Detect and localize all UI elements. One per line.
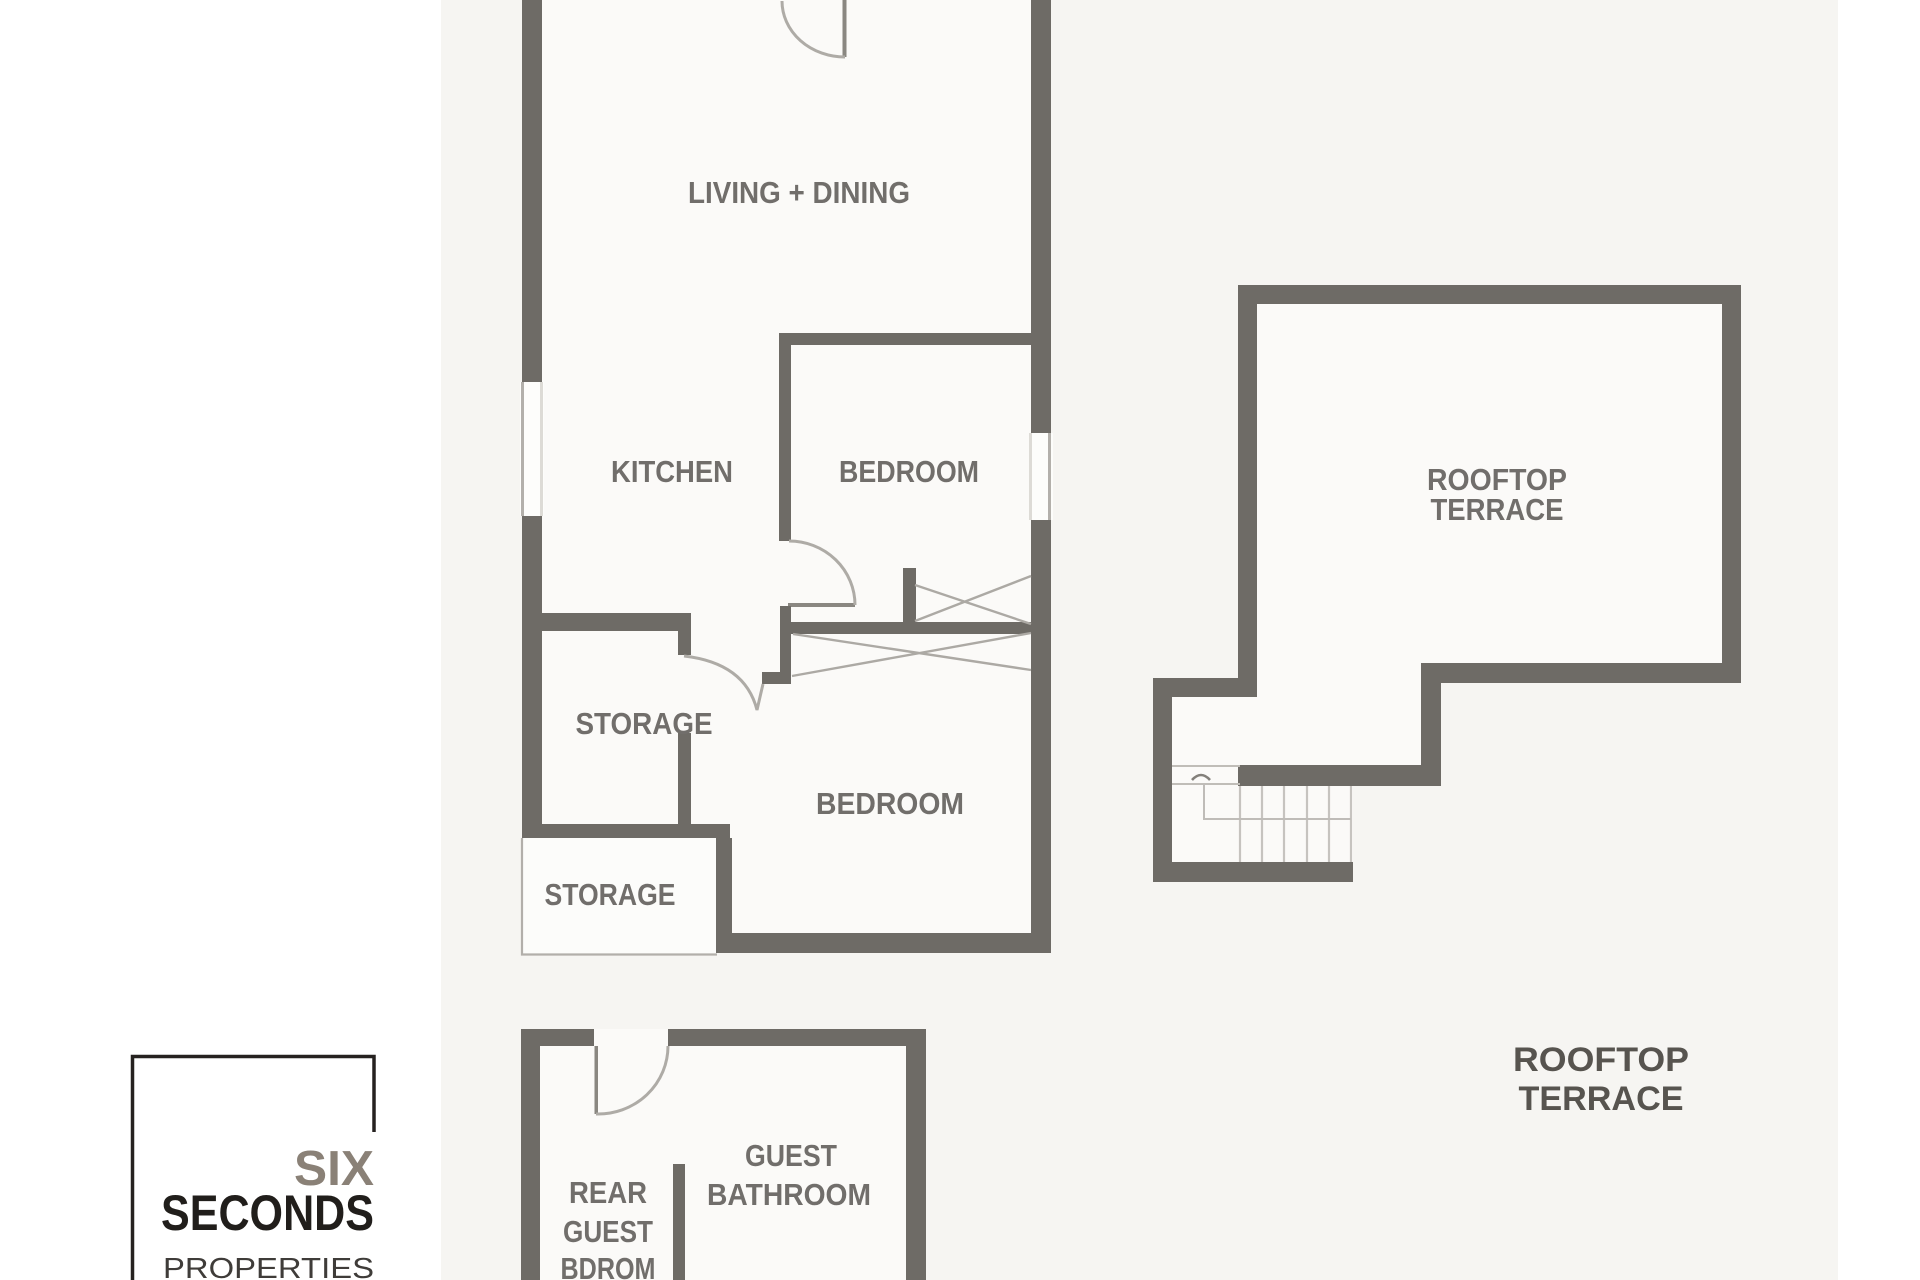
svg-text:BDROM: BDROM (561, 1251, 656, 1280)
svg-text:BATHROOM: BATHROOM (707, 1177, 871, 1212)
svg-text:STORAGE: STORAGE (545, 877, 676, 912)
svg-text:STORAGE: STORAGE (576, 706, 713, 741)
svg-text:TERRACE: TERRACE (1431, 492, 1564, 527)
svg-text:SECONDS: SECONDS (161, 1185, 374, 1241)
svg-text:LIVING + DINING: LIVING + DINING (688, 175, 910, 210)
svg-text:BEDROOM: BEDROOM (816, 786, 964, 821)
svg-text:KITCHEN: KITCHEN (611, 454, 733, 489)
svg-text:BEDROOM: BEDROOM (839, 454, 979, 489)
svg-text:GUEST: GUEST (563, 1214, 653, 1249)
svg-text:TERRACE: TERRACE (1519, 1080, 1684, 1118)
svg-text:PROPERTIES: PROPERTIES (163, 1253, 374, 1280)
svg-text:GUEST: GUEST (745, 1138, 837, 1173)
svg-text:ROOFTOP: ROOFTOP (1513, 1041, 1689, 1079)
svg-text:REAR: REAR (569, 1175, 647, 1210)
